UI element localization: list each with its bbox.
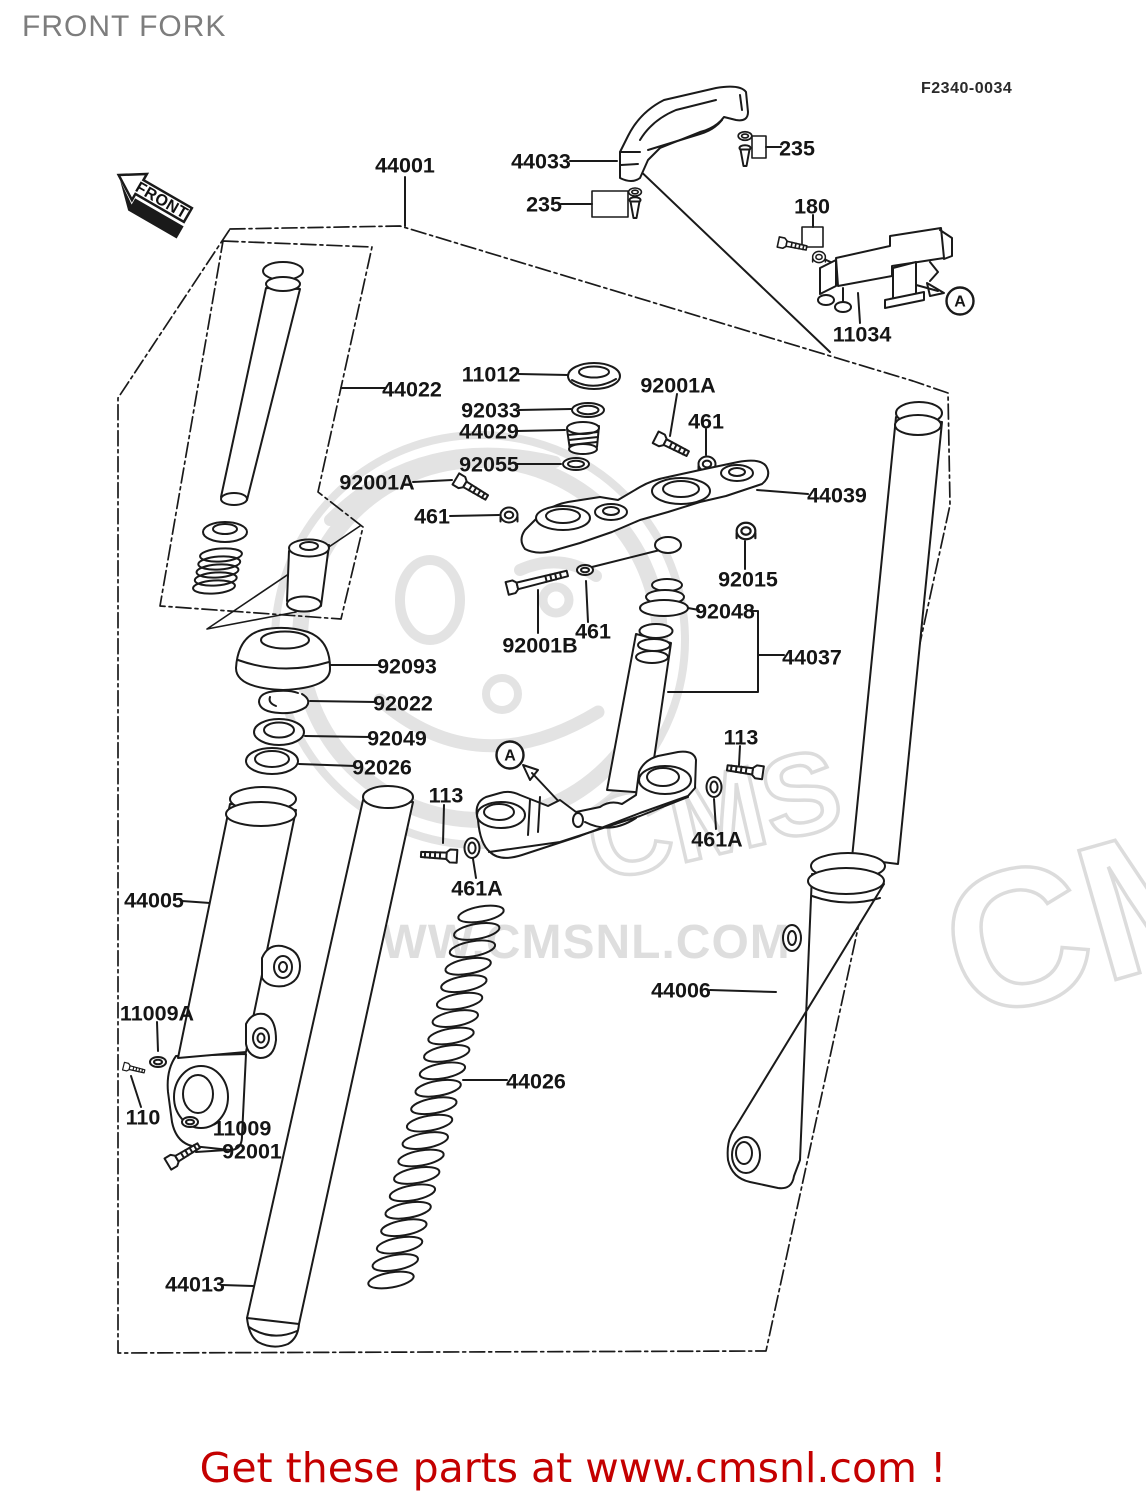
spring-coil [376,1234,424,1257]
part-label-461A[interactable]: 461A [451,877,502,901]
part-label-44026[interactable]: 44026 [506,1070,566,1094]
part-label-44006[interactable]: 44006 [651,979,711,1003]
nut-92015 [737,523,756,540]
part-label-92015[interactable]: 92015 [718,568,778,592]
part-label-92001A[interactable]: 92001A [339,471,414,495]
part-label-11012[interactable]: 11012 [462,363,521,387]
part-label-113[interactable]: 113 [724,726,759,750]
part-shape-44029-plug [567,422,599,454]
part-label-11034[interactable]: 11034 [833,323,892,347]
part-label-113[interactable]: 113 [429,784,464,808]
spring-coil [384,1199,432,1222]
spring-coil [393,1164,441,1187]
part-shape-92026-ring [246,748,298,774]
part-shape-11034-bracket [818,228,952,312]
part-shape-92055-oring [563,458,589,470]
part-shape-11012-cap [568,363,620,389]
spring-coil [427,1025,475,1048]
screw-235-left [630,197,641,218]
part-label-92093[interactable]: 92093 [377,655,437,679]
part-label-92055[interactable]: 92055 [459,453,519,477]
diagram-page: FRONT FORK F2340-0034 CMS CMS WWW.CMSNL.… [0,0,1146,1500]
part-shape-spring-seat [203,522,247,542]
ref-a-lower-marker: A [497,742,524,769]
part-label-44033[interactable]: 44033 [511,150,571,174]
bolt-113-left [421,848,458,863]
part-label-92001A[interactable]: 92001A [640,374,715,398]
spring-coil [367,1269,415,1292]
part-label-44022[interactable]: 44022 [382,378,442,402]
leader-lines [131,147,938,1286]
part-label-235[interactable]: 235 [779,137,815,161]
front-fork-exploded-diagram: CMS CMS WWW.CMSNL.COM [0,0,1146,1500]
part-label-92001B[interactable]: 92001B [502,634,577,658]
spring-coil [401,1129,449,1152]
spring-coil [410,1094,458,1117]
spring-coil [193,579,236,595]
part-label-44039[interactable]: 44039 [807,484,867,508]
spring-coil [440,972,488,995]
nut-461-left [501,508,518,523]
bolt-92001 [165,1140,203,1170]
part-label-92026[interactable]: 92026 [352,756,412,780]
washer-235-right [738,132,752,141]
part-label-11009[interactable]: 11009 [213,1117,272,1141]
spring-coil [388,1181,436,1204]
spring-coil [196,563,239,579]
spring-coil [194,571,237,587]
part-label-461[interactable]: 461 [414,505,450,529]
ref-letter: A [504,748,516,765]
spring-coil [198,555,241,571]
washer-461-lower [577,565,593,575]
spring-coil [423,1042,471,1065]
bolt-110 [123,1062,146,1075]
part-shape-92049-oil-seal [254,719,304,745]
part-label-11009A[interactable]: 11009A [120,1002,194,1026]
spring-coil [371,1251,419,1274]
washer-11009a [150,1057,166,1067]
part-shape-92022-circlip [259,691,308,713]
part-label-44001[interactable]: 44001 [375,154,435,178]
spring-coil [418,1059,466,1082]
nut-180 [813,251,826,262]
part-shape-44005-outer-tube [168,787,300,1150]
part-shape-damper-rod [221,262,303,505]
watermark-url-text: WWW.CMSNL.COM [335,916,791,969]
spring-coil [397,1147,445,1170]
part-label-44013[interactable]: 44013 [165,1273,225,1297]
part-shape-92033-oring [572,403,604,417]
part-label-92022[interactable]: 92022 [373,692,433,716]
washer-235-left [629,188,642,196]
part-label-180[interactable]: 180 [794,195,830,219]
ref-letter: A [954,294,966,311]
part-label-235[interactable]: 235 [526,193,562,217]
part-label-92048[interactable]: 92048 [695,600,755,624]
front-direction-arrow: FRONT [106,162,198,239]
part-label-461[interactable]: 461 [688,410,724,434]
part-shape-92093-dust-seal [236,628,330,690]
part-label-44005[interactable]: 44005 [124,889,184,913]
part-label-44029[interactable]: 44029 [459,420,519,444]
spring-coil [200,547,243,563]
part-label-44037[interactable]: 44037 [782,646,842,670]
spring-coil [406,1112,454,1135]
part-label-461[interactable]: 461 [575,620,611,644]
part-shape-rebound-spring [193,547,243,595]
bolt-180 [777,237,807,253]
spring-coil [436,990,484,1013]
screw-235-right [740,145,751,166]
spring-coil [380,1216,428,1239]
washer-461a-right [707,777,722,797]
watermark-brand-text-large: CMS [919,733,1146,1062]
bolt-92001a-left [453,473,491,503]
part-label-92049[interactable]: 92049 [367,727,427,751]
ref-a-upper-marker: A [947,288,974,315]
part-label-110[interactable]: 110 [126,1106,161,1130]
part-shape-cylinder-unit [287,540,329,612]
spring-coil [431,1007,479,1030]
part-label-92001[interactable]: 92001 [222,1140,282,1164]
washer-461a-left [465,838,480,858]
footer-cta-text: Get these parts at www.cmsnl.com ! [0,1444,1146,1492]
part-shape-44033-handle-holder [620,87,748,181]
part-label-461A[interactable]: 461A [691,828,742,852]
bolt-92001a-right [653,431,691,459]
spring-coil [414,1077,462,1100]
gasket-11009 [182,1117,198,1127]
